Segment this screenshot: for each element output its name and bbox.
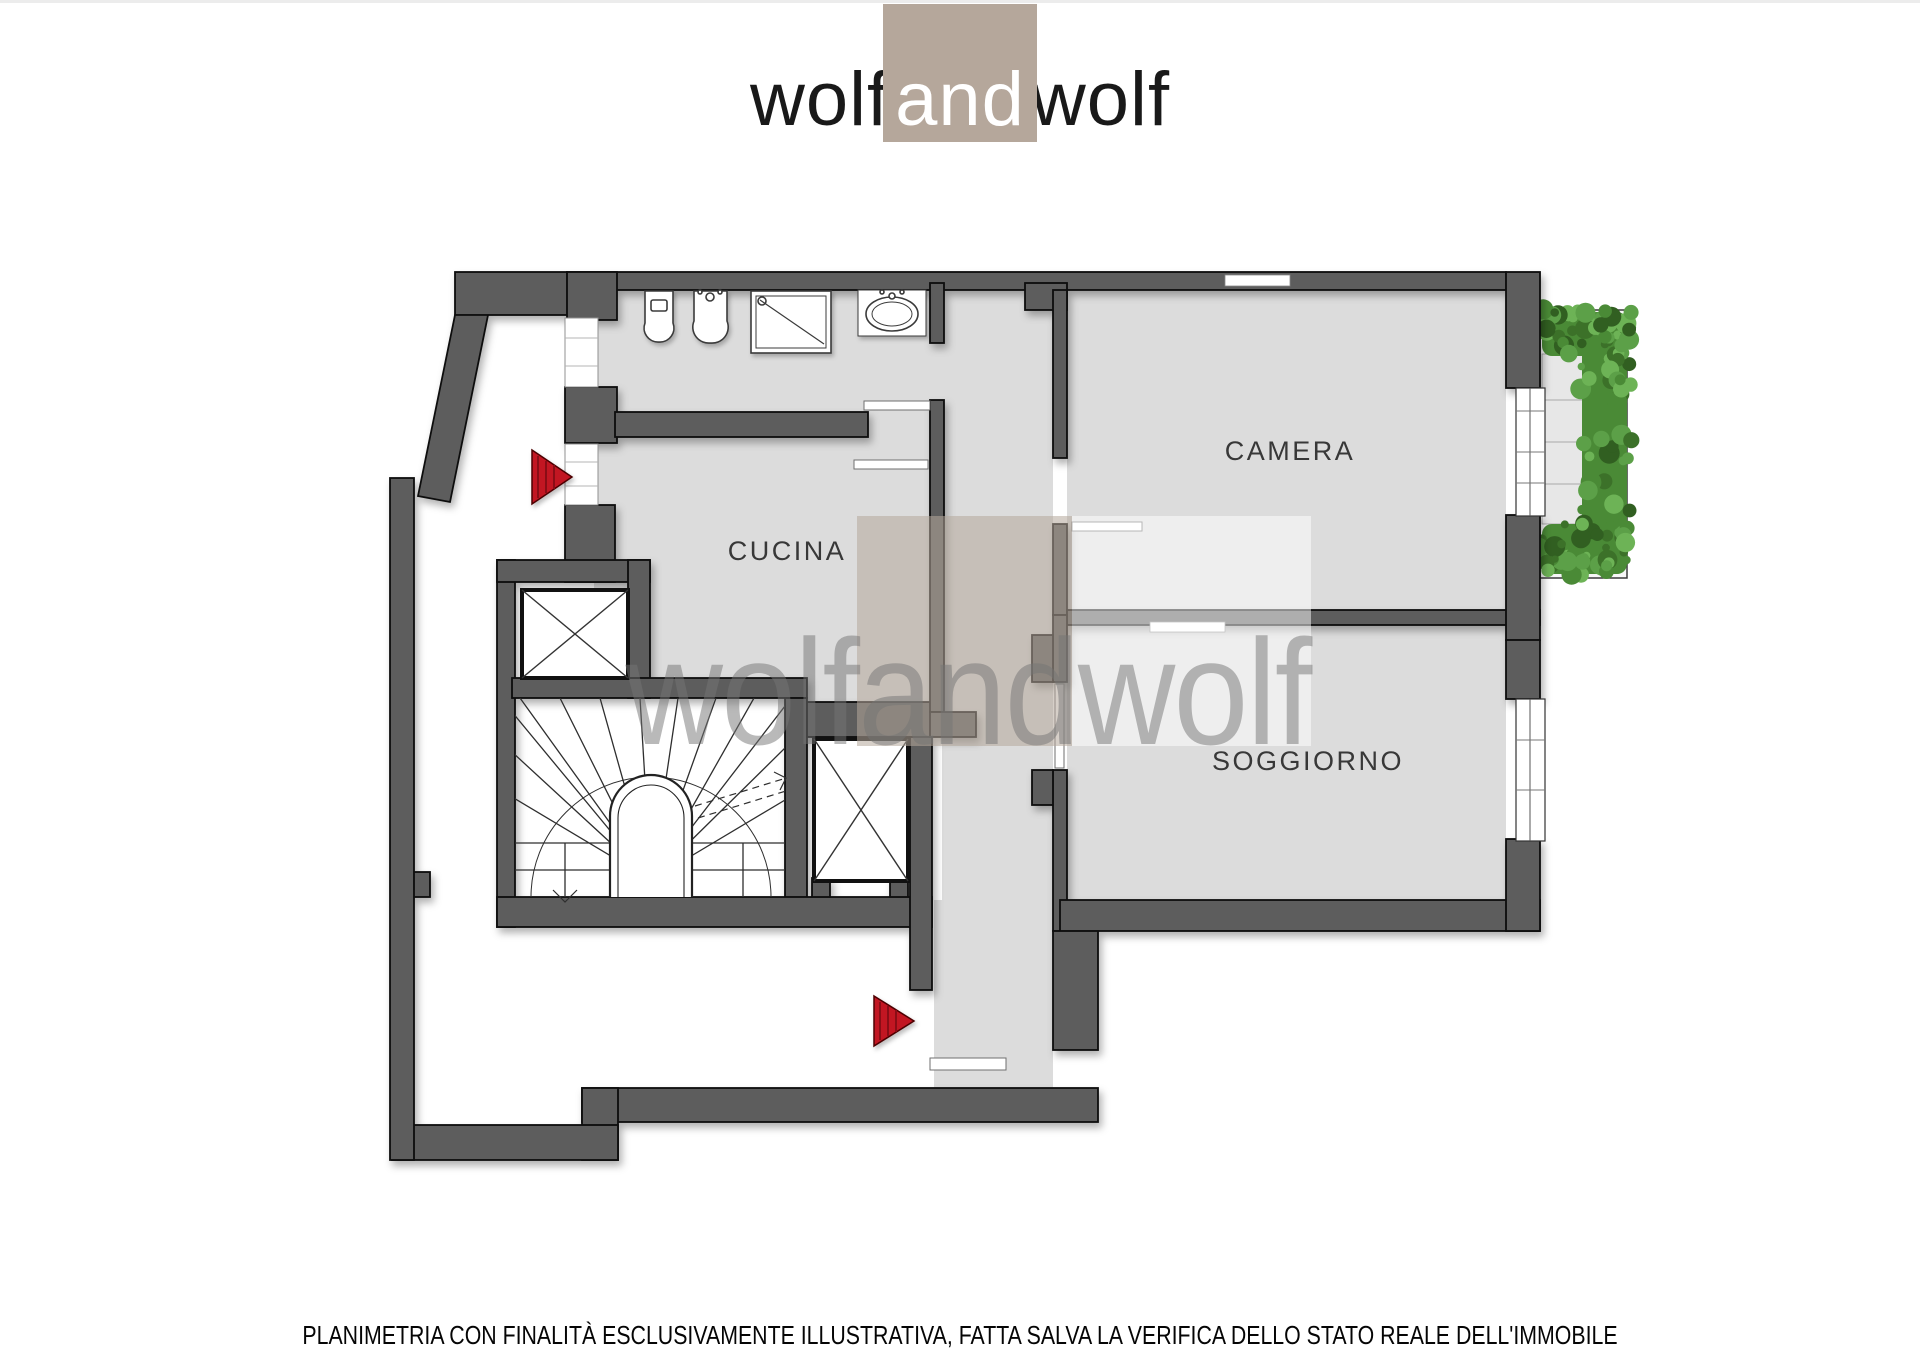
wall-camera-left-up bbox=[1053, 290, 1067, 458]
hedge-leaf bbox=[1571, 528, 1591, 548]
wall-shaft-top bbox=[497, 560, 650, 582]
hedge-leaf bbox=[1576, 518, 1589, 531]
hedge-leaf bbox=[1604, 495, 1623, 514]
radiator bbox=[1225, 275, 1290, 286]
window-icon bbox=[1516, 699, 1545, 841]
wall-thin-notch bbox=[414, 872, 430, 897]
hedge-leaf bbox=[1578, 481, 1598, 501]
hedge-leaf bbox=[1582, 371, 1597, 386]
hedge-leaf bbox=[1578, 363, 1585, 370]
hedge-leaf bbox=[1576, 303, 1596, 323]
floorplan-drawing: wolfandwolf CUCINA CAMERA SOGGIORNO bbox=[0, 0, 1920, 1358]
wall-sogg-right-up bbox=[1506, 640, 1540, 699]
hedge-leaf bbox=[1615, 374, 1626, 385]
hedge-leaf bbox=[1599, 304, 1612, 317]
door-leaf bbox=[930, 1058, 1006, 1070]
wall-left-mid bbox=[565, 387, 617, 443]
wall-sogg-bottom bbox=[1060, 900, 1540, 931]
wall-right-mid bbox=[1506, 515, 1540, 640]
wall-bath-hall-top bbox=[930, 283, 944, 343]
hedge-leaf bbox=[1561, 520, 1569, 528]
label-camera: CAMERA bbox=[1225, 436, 1356, 466]
hedge-leaf bbox=[1614, 338, 1628, 352]
hedge-leaf bbox=[1616, 533, 1635, 552]
door-opening-a bbox=[565, 318, 598, 387]
label-soggiorno: SOGGIORNO bbox=[1212, 746, 1404, 776]
hedge-leaf bbox=[1622, 556, 1631, 565]
wall-bottom-left bbox=[392, 1125, 618, 1160]
toilet-icon bbox=[644, 291, 674, 342]
wall-shaft-left bbox=[497, 560, 515, 927]
hedge-leaf bbox=[1593, 431, 1609, 447]
wall-bath-bottom bbox=[615, 412, 868, 437]
window-icon bbox=[1516, 388, 1545, 516]
hedge-leaf bbox=[1551, 556, 1558, 563]
hedge-leaf bbox=[1593, 317, 1608, 332]
door-leaf bbox=[854, 460, 928, 469]
shower-icon bbox=[751, 291, 831, 353]
stair-arch bbox=[610, 775, 692, 897]
disclaimer-text: PLANIMETRIA CON FINALITÀ ESCLUSIVAMENTE … bbox=[173, 1320, 1747, 1351]
floorplan-page: wolfandwolf bbox=[0, 0, 1920, 1358]
hedge-leaf bbox=[1577, 505, 1587, 515]
bidet-icon bbox=[693, 290, 728, 343]
wall-junction bbox=[567, 272, 617, 320]
elevator-icon bbox=[522, 590, 628, 678]
hedge-leaf bbox=[1575, 554, 1591, 570]
hedge-leaf bbox=[1624, 305, 1639, 320]
hedge-leaf bbox=[1563, 349, 1575, 361]
wall-landing-right bbox=[1053, 931, 1098, 1050]
entrance-arrow-icon bbox=[874, 996, 914, 1046]
hedge-leaf bbox=[1585, 452, 1595, 462]
door-leaf bbox=[864, 401, 930, 410]
watermark-text: wolfandwolf bbox=[625, 608, 1313, 776]
hedge-leaf bbox=[1550, 308, 1559, 317]
hedge-leaf bbox=[1577, 339, 1587, 349]
hedge-leaf bbox=[1619, 456, 1628, 465]
wall-bottom-mid bbox=[582, 1088, 1098, 1122]
hedge-leaf bbox=[1557, 540, 1566, 549]
hedge-leaf bbox=[1591, 528, 1604, 541]
wall-thin-left bbox=[390, 478, 414, 1160]
wall-sogg-right-low bbox=[1506, 839, 1540, 931]
hedge-leaf bbox=[1583, 465, 1599, 481]
sink-icon bbox=[858, 290, 926, 336]
hedge-leaf bbox=[1623, 504, 1637, 518]
balcony bbox=[1530, 299, 1640, 584]
hedge-leaf bbox=[1576, 436, 1591, 451]
wall-top-left bbox=[455, 272, 567, 315]
label-cucina: CUCINA bbox=[728, 536, 847, 566]
hedge-leaf bbox=[1623, 432, 1639, 448]
hedge-leaf bbox=[1591, 395, 1608, 412]
hedge-leaf bbox=[1622, 323, 1636, 337]
wall-right-top bbox=[1506, 272, 1540, 388]
hedge-leaf bbox=[1606, 519, 1613, 526]
hedge-leaf bbox=[1541, 564, 1554, 577]
wall-stairs-bottom bbox=[497, 897, 932, 927]
door-opening-b bbox=[565, 444, 598, 505]
wall-diagonal bbox=[418, 315, 488, 502]
hedge-leaf bbox=[1601, 560, 1612, 571]
